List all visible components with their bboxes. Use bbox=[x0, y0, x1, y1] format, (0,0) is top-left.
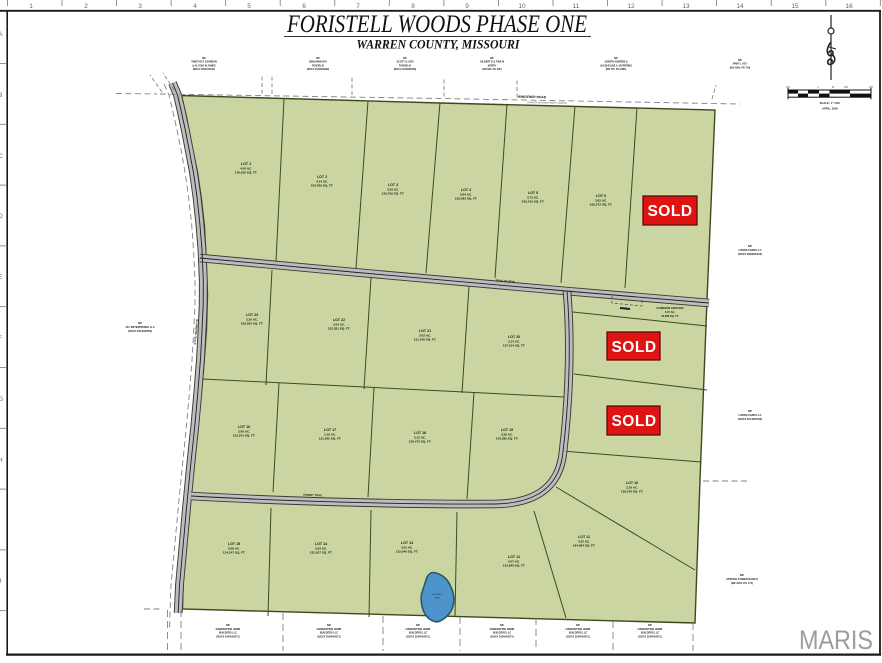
svg-text:29,088 SQ. FT.: 29,088 SQ. FT. bbox=[661, 314, 679, 318]
svg-text:FORISTELL WOODS PHASE ONE: FORISTELL WOODS PHASE ONE bbox=[286, 11, 587, 38]
svg-text:F: F bbox=[0, 335, 2, 342]
svg-text:1: 1 bbox=[29, 3, 33, 10]
svg-text:184,084 SQ. FT.: 184,084 SQ. FT. bbox=[573, 544, 596, 548]
svg-text:COMMON GROUND: COMMON GROUND bbox=[656, 306, 683, 310]
svg-text:(DOC# 2004002553): (DOC# 2004002553) bbox=[128, 329, 152, 333]
svg-text:WINDERER ROAD: WINDERER ROAD bbox=[518, 95, 547, 100]
svg-text:139,505 SQ. FT.: 139,505 SQ. FT. bbox=[241, 322, 264, 326]
svg-text:135,473 SQ. FT.: 135,473 SQ. FT. bbox=[409, 440, 432, 444]
svg-text:N/F: N/F bbox=[614, 57, 618, 60]
svg-text:3.14 AC.: 3.14 AC. bbox=[508, 340, 520, 344]
svg-text:GENERATION HOME: GENERATION HOME bbox=[317, 628, 342, 631]
svg-text:N/F: N/F bbox=[648, 624, 653, 627]
svg-text:SOLD: SOLD bbox=[611, 339, 656, 356]
svg-text:3: 3 bbox=[138, 3, 142, 10]
svg-text:(DOC# 2013090058): (DOC# 2013090058) bbox=[394, 68, 416, 71]
svg-text:H: H bbox=[0, 457, 3, 464]
svg-text:GENERATION HOME: GENERATION HOME bbox=[566, 628, 591, 631]
svg-text:MARY L KEY: MARY L KEY bbox=[733, 63, 748, 66]
svg-text:3.07 AC.: 3.07 AC. bbox=[508, 560, 520, 564]
svg-text:N/F: N/F bbox=[202, 57, 206, 60]
svg-text:132,048 SQ. FT.: 132,048 SQ. FT. bbox=[396, 550, 419, 554]
svg-text:LORDS FARM LLC: LORDS FARM LLC bbox=[739, 413, 762, 417]
svg-text:137,014 SQ. FT.: 137,014 SQ. FT. bbox=[503, 344, 526, 348]
svg-text:SCOTT & LORI: SCOTT & LORI bbox=[397, 61, 414, 64]
svg-text:(DB 707, PG 2985): (DB 707, PG 2985) bbox=[606, 68, 627, 71]
svg-text:MARIS: MARIS bbox=[799, 625, 873, 655]
svg-text:3.82 AC.: 3.82 AC. bbox=[595, 199, 607, 203]
svg-text:N/F: N/F bbox=[226, 624, 231, 627]
svg-text:C: C bbox=[0, 153, 3, 160]
svg-text:GENERATION HOME: GENERATION HOME bbox=[216, 628, 241, 631]
svg-text:3.20 AC.: 3.20 AC. bbox=[246, 318, 258, 322]
svg-text:APRIL, 2005: APRIL, 2005 bbox=[822, 107, 838, 111]
svg-text:N/F: N/F bbox=[327, 624, 332, 627]
svg-text:N/F: N/F bbox=[490, 57, 494, 60]
svg-text:176,818 SQ. FT.: 176,818 SQ. FT. bbox=[235, 171, 258, 175]
svg-text:12: 12 bbox=[627, 3, 635, 10]
svg-text:N/F: N/F bbox=[740, 573, 745, 577]
svg-text:J: J bbox=[0, 578, 1, 585]
svg-text:8: 8 bbox=[411, 3, 415, 10]
svg-text:D: D bbox=[0, 213, 3, 220]
svg-text:LORDS FARM LLC: LORDS FARM LLC bbox=[739, 248, 762, 252]
svg-text:LOT 14: LOT 14 bbox=[315, 542, 327, 546]
svg-text:3.73 AC.: 3.73 AC. bbox=[527, 196, 539, 200]
svg-text:(DOC# 2024042071): (DOC# 2024042071) bbox=[638, 636, 661, 639]
svg-text:SCALE: 1”=100’: SCALE: 1”=100’ bbox=[820, 101, 841, 105]
svg-text:(DOC# 2024042071): (DOC# 2024042071) bbox=[216, 636, 239, 639]
svg-text:POND: POND bbox=[434, 598, 440, 600]
svg-text:N/F: N/F bbox=[416, 624, 421, 627]
svg-text:JAY ENTERPRISES LLC: JAY ENTERPRISES LLC bbox=[125, 325, 155, 329]
svg-text:132,037 SQ. FT.: 132,037 SQ. FT. bbox=[310, 551, 333, 555]
svg-text:LOT 6: LOT 6 bbox=[596, 194, 606, 198]
svg-text:N/F: N/F bbox=[138, 321, 143, 325]
svg-text:7: 7 bbox=[356, 3, 360, 10]
svg-text:POSSELIS: POSSELIS bbox=[399, 65, 411, 68]
svg-text:184,769 SQ. FT.: 184,769 SQ. FT. bbox=[311, 184, 334, 188]
svg-text:3.19 AC.: 3.19 AC. bbox=[324, 433, 336, 437]
svg-text:LOT 19: LOT 19 bbox=[501, 428, 513, 432]
svg-text:2: 2 bbox=[84, 3, 88, 10]
svg-text:N/F: N/F bbox=[500, 624, 505, 627]
svg-text:LOT 16: LOT 16 bbox=[238, 425, 250, 429]
svg-text:SOLD: SOLD bbox=[611, 413, 656, 430]
svg-text:N/F: N/F bbox=[748, 409, 753, 413]
svg-text:3.11 AC.: 3.11 AC. bbox=[414, 436, 426, 440]
svg-text:LOT 10: LOT 10 bbox=[626, 481, 638, 485]
svg-text:LOT 18: LOT 18 bbox=[414, 431, 426, 435]
svg-text:162,416 SQ. FT.: 162,416 SQ. FT. bbox=[522, 200, 545, 204]
svg-text:3.18 AC.: 3.18 AC. bbox=[626, 486, 638, 490]
svg-text:15: 15 bbox=[791, 3, 799, 10]
svg-text:TIMOTHY E JOHNSON: TIMOTHY E JOHNSON bbox=[191, 61, 217, 64]
svg-text:G: G bbox=[0, 396, 3, 403]
svg-text:3.02 AC.: 3.02 AC. bbox=[419, 334, 431, 338]
svg-text:LOT 4: LOT 4 bbox=[461, 188, 471, 192]
svg-text:3.08 AC.: 3.08 AC. bbox=[228, 547, 240, 551]
svg-text:N/F: N/F bbox=[576, 624, 581, 627]
svg-text:131,540 SQ. FT.: 131,540 SQ. FT. bbox=[414, 338, 437, 342]
svg-text:11: 11 bbox=[573, 3, 580, 10]
svg-text:156,709 SQ. FT.: 156,709 SQ. FT. bbox=[382, 192, 405, 196]
svg-text:143,389 SQ. FT.: 143,389 SQ. FT. bbox=[496, 437, 519, 441]
svg-text:LOT 17: LOT 17 bbox=[324, 428, 336, 432]
svg-text:(DOC# 2024042071): (DOC# 2024042071) bbox=[490, 636, 513, 639]
svg-text:6: 6 bbox=[302, 3, 306, 10]
svg-text:(DOC# 2024042071): (DOC# 2024042071) bbox=[566, 636, 589, 639]
svg-text:NORTH: NORTH bbox=[488, 65, 497, 68]
svg-text:LOT 5: LOT 5 bbox=[528, 191, 538, 195]
svg-text:0.67 AC.: 0.67 AC. bbox=[665, 310, 675, 314]
svg-text:POSSELIS: POSSELIS bbox=[312, 65, 324, 68]
svg-text:16: 16 bbox=[845, 3, 853, 10]
svg-text:EXISTING: EXISTING bbox=[432, 594, 442, 596]
svg-text:(DB 632, PG 300): (DB 632, PG 300) bbox=[482, 68, 501, 71]
svg-text:3.04 AC.: 3.04 AC. bbox=[333, 323, 345, 327]
svg-text:N/F: N/F bbox=[748, 244, 753, 248]
svg-text:LOT 20: LOT 20 bbox=[508, 335, 520, 339]
svg-text:BUILDERS LLC: BUILDERS LLC bbox=[320, 632, 339, 635]
svg-text:GENERATION HOME: GENERATION HOME bbox=[638, 628, 663, 631]
svg-text:BENJAMIN DAY: BENJAMIN DAY bbox=[309, 61, 327, 64]
svg-text:166,372 SQ. FT.: 166,372 SQ. FT. bbox=[590, 203, 613, 207]
svg-text:3.64 AC.: 3.64 AC. bbox=[460, 193, 472, 197]
svg-text:WARREN COUNTY, MISSOURI: WARREN COUNTY, MISSOURI bbox=[357, 38, 521, 52]
svg-text:133,241 SQ. FT.: 133,241 SQ. FT. bbox=[233, 434, 256, 438]
svg-text:5: 5 bbox=[247, 3, 251, 10]
svg-text:BUILDERS LLC: BUILDERS LLC bbox=[409, 632, 428, 635]
svg-text:SOLD: SOLD bbox=[647, 203, 692, 220]
svg-text:133,840 SQ. FT.: 133,840 SQ. FT. bbox=[503, 564, 526, 568]
svg-text:3.03 AC.: 3.03 AC. bbox=[401, 546, 413, 550]
svg-text:132,381 SQ. FT.: 132,381 SQ. FT. bbox=[328, 327, 351, 331]
svg-text:3.03 AC.: 3.03 AC. bbox=[315, 547, 327, 551]
svg-text:LOT 1: LOT 1 bbox=[241, 162, 251, 166]
svg-text:131,565 SQ. FT.: 131,565 SQ. FT. bbox=[319, 437, 342, 441]
svg-text:LOT 21: LOT 21 bbox=[419, 329, 431, 333]
svg-text:4.24 AC.: 4.24 AC. bbox=[316, 180, 328, 184]
svg-text:138,578 SQ. FT.: 138,578 SQ. FT. bbox=[621, 490, 644, 494]
svg-text:4: 4 bbox=[193, 3, 197, 10]
svg-text:BUILDERS LLC: BUILDERS LLC bbox=[493, 632, 512, 635]
svg-text:LOT 13: LOT 13 bbox=[401, 541, 413, 545]
svg-text:LOT 22: LOT 22 bbox=[333, 318, 345, 322]
svg-text:B: B bbox=[0, 92, 2, 99]
svg-text:N/F: N/F bbox=[738, 59, 742, 62]
svg-text:N/F: N/F bbox=[403, 57, 407, 60]
svg-text:GILBERT E & TINA M: GILBERT E & TINA M bbox=[480, 61, 504, 64]
svg-text:& ALYSSA M JAMES: & ALYSSA M JAMES bbox=[192, 65, 216, 68]
svg-text:3.29 AC.: 3.29 AC. bbox=[501, 433, 513, 437]
svg-text:(DOC# 2024042071): (DOC# 2024042071) bbox=[317, 636, 340, 639]
svg-text:14: 14 bbox=[736, 3, 744, 10]
svg-text:134,247 SQ. FT.: 134,247 SQ. FT. bbox=[223, 551, 246, 555]
svg-text:(DB 2396, PG 714): (DB 2396, PG 714) bbox=[730, 67, 751, 70]
svg-text:(DB 1004, PG 171): (DB 1004, PG 171) bbox=[731, 581, 753, 585]
svg-text:(DOC# 2024042071): (DOC# 2024042071) bbox=[406, 636, 429, 639]
svg-text:158,583 SQ. FT.: 158,583 SQ. FT. bbox=[455, 197, 478, 201]
svg-text:13: 13 bbox=[682, 3, 690, 10]
svg-text:(DOC# 2009074541): (DOC# 2009074541) bbox=[193, 68, 215, 71]
svg-text:BUILDERS LLC: BUILDERS LLC bbox=[219, 632, 238, 635]
svg-text:(DOC# 2014005190): (DOC# 2014005190) bbox=[738, 417, 762, 421]
svg-text:JACQUELINE A JASPERING: JACQUELINE A JASPERING bbox=[600, 65, 632, 68]
svg-text:BUILDERS LLC: BUILDERS LLC bbox=[641, 632, 660, 635]
svg-text:BUILDERS LLC: BUILDERS LLC bbox=[569, 632, 588, 635]
svg-text:LOT 23: LOT 23 bbox=[246, 313, 258, 317]
svg-text:3.59 AC.: 3.59 AC. bbox=[387, 188, 399, 192]
svg-text:LOT 12: LOT 12 bbox=[508, 555, 520, 559]
svg-text:9: 9 bbox=[465, 3, 469, 10]
svg-text:LOT 11: LOT 11 bbox=[578, 535, 590, 539]
svg-text:JOSEPH ANDREW &: JOSEPH ANDREW & bbox=[604, 61, 628, 64]
svg-text:LOT 15: LOT 15 bbox=[228, 542, 240, 546]
svg-text:STRONG TOWER RANCH: STRONG TOWER RANCH bbox=[726, 577, 758, 581]
svg-text:(DOC# 2009005190): (DOC# 2009005190) bbox=[738, 252, 762, 256]
svg-text:4.22 AC.: 4.22 AC. bbox=[578, 540, 590, 544]
svg-text:10: 10 bbox=[518, 3, 526, 10]
svg-text:N/F: N/F bbox=[316, 57, 320, 60]
svg-text:3.06 AC.: 3.06 AC. bbox=[238, 430, 250, 434]
svg-text:LOT 2: LOT 2 bbox=[317, 175, 327, 179]
svg-text:LOT 3: LOT 3 bbox=[388, 183, 398, 187]
svg-text:4.06 AC.: 4.06 AC. bbox=[240, 167, 252, 171]
svg-text:GENERATION HOME: GENERATION HOME bbox=[490, 628, 515, 631]
svg-text:(DOC# 2013052990): (DOC# 2013052990) bbox=[307, 68, 329, 71]
svg-text:GENERATION HOME: GENERATION HOME bbox=[406, 628, 431, 631]
